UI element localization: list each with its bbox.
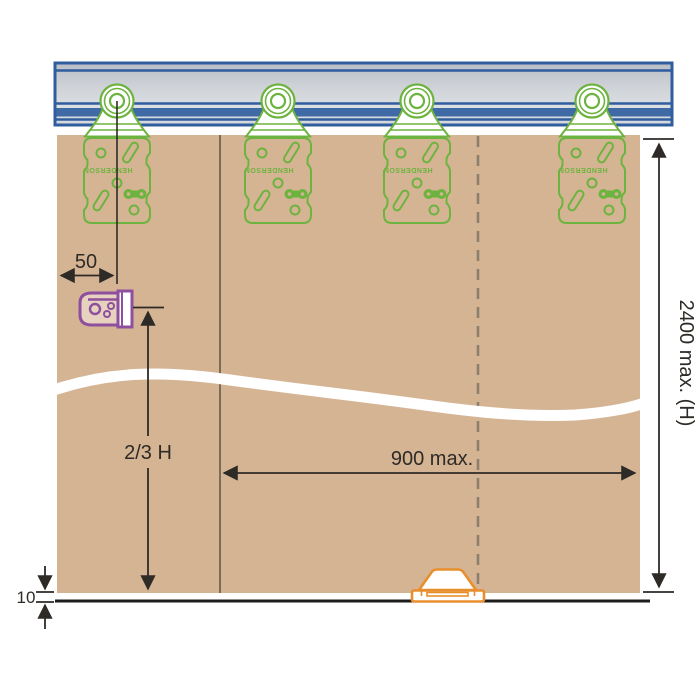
installation-diagram: HENDERSON HENDERSON [0, 0, 700, 700]
dimension-label-10: 10 [17, 588, 36, 607]
brand-text: HENDERSON [383, 166, 432, 173]
brand-text: HENDERSON [244, 166, 293, 173]
adjustment-bolt-icon [599, 189, 622, 199]
wheel-axle [271, 94, 285, 108]
adjustment-bolt-icon [124, 189, 147, 199]
wall-bracket [80, 291, 132, 327]
dimension-label-900-max: 900 max. [391, 448, 473, 470]
dimension-label-50: 50 [75, 251, 97, 273]
wheel-axle [410, 94, 424, 108]
dimension-door-height: 2400 max. (H) [643, 139, 697, 592]
door-panel [57, 135, 640, 593]
dimension-floor-gap: 10 [17, 566, 54, 629]
brand-text: HENDERSON [83, 166, 132, 173]
adjustment-bolt-icon [285, 189, 308, 199]
wheel-axle [585, 94, 599, 108]
dimension-label-2400-max: 2400 max. (H) [675, 300, 697, 427]
dimension-label-two-thirds-h: 2/3 H [124, 442, 172, 464]
diagram-canvas: HENDERSON HENDERSON [0, 0, 700, 700]
brand-text: HENDERSON [558, 166, 607, 173]
adjustment-bolt-icon [424, 189, 447, 199]
